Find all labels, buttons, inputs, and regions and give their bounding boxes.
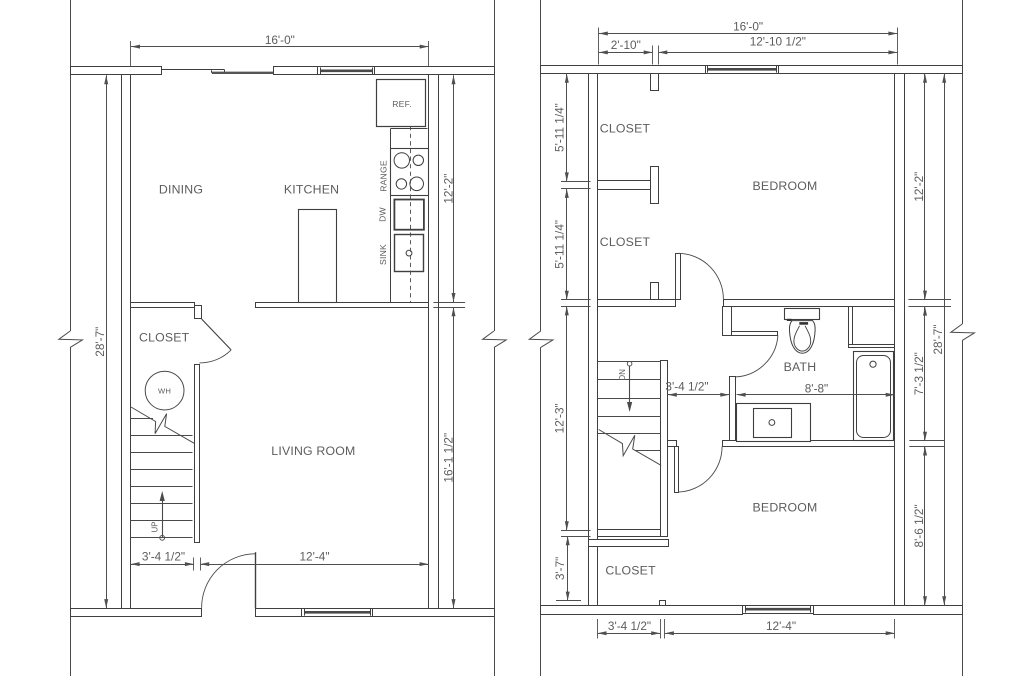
svg-text:3'-4 1/2": 3'-4 1/2" — [142, 550, 185, 564]
svg-text:DN: DN — [618, 369, 627, 380]
svg-text:KITCHEN: KITCHEN — [284, 183, 339, 197]
svg-text:BEDROOM: BEDROOM — [753, 179, 818, 193]
svg-text:12'-4": 12'-4" — [766, 619, 796, 633]
svg-text:RANGE: RANGE — [379, 160, 389, 192]
svg-text:DINING: DINING — [159, 183, 203, 197]
svg-text:28'-7": 28'-7" — [93, 327, 107, 357]
svg-text:12'-2": 12'-2" — [441, 174, 455, 204]
svg-text:5'-11 1/4": 5'-11 1/4" — [552, 220, 566, 269]
svg-text:16'-1 1/2": 16'-1 1/2" — [441, 433, 455, 483]
svg-text:8'-8": 8'-8" — [805, 382, 829, 396]
svg-text:16'-0": 16'-0" — [733, 19, 763, 33]
svg-text:28'-7": 28'-7" — [931, 324, 945, 354]
svg-text:LIVING ROOM: LIVING ROOM — [271, 444, 355, 458]
svg-text:CLOSET: CLOSET — [139, 331, 190, 345]
svg-text:8'-6 1/2": 8'-6 1/2" — [912, 504, 926, 547]
svg-text:3'-4 1/2": 3'-4 1/2" — [608, 619, 651, 633]
svg-text:WH: WH — [158, 386, 171, 395]
svg-text:CLOSET: CLOSET — [600, 235, 651, 249]
svg-text:UP: UP — [151, 522, 160, 533]
svg-text:REF.: REF. — [392, 99, 411, 109]
svg-text:3'-4 1/2": 3'-4 1/2" — [665, 379, 708, 393]
svg-text:2'-10": 2'-10" — [611, 38, 641, 52]
svg-text:3'-7": 3'-7" — [553, 557, 567, 581]
svg-text:DW: DW — [377, 206, 387, 221]
svg-text:12'-10 1/2": 12'-10 1/2" — [750, 35, 806, 49]
svg-text:SINK: SINK — [378, 244, 388, 265]
svg-text:BATH: BATH — [784, 360, 817, 374]
svg-text:CLOSET: CLOSET — [605, 564, 656, 578]
svg-text:BEDROOM: BEDROOM — [753, 501, 818, 515]
svg-text:5'-11 1/4": 5'-11 1/4" — [552, 103, 566, 152]
svg-text:16'-0": 16'-0" — [265, 33, 295, 47]
svg-text:7'-3 1/2": 7'-3 1/2" — [912, 352, 926, 395]
svg-text:12'-4": 12'-4" — [299, 550, 329, 564]
svg-text:CLOSET: CLOSET — [600, 122, 651, 136]
svg-text:12'-2": 12'-2" — [912, 172, 926, 202]
svg-text:12'-3": 12'-3" — [552, 403, 566, 433]
